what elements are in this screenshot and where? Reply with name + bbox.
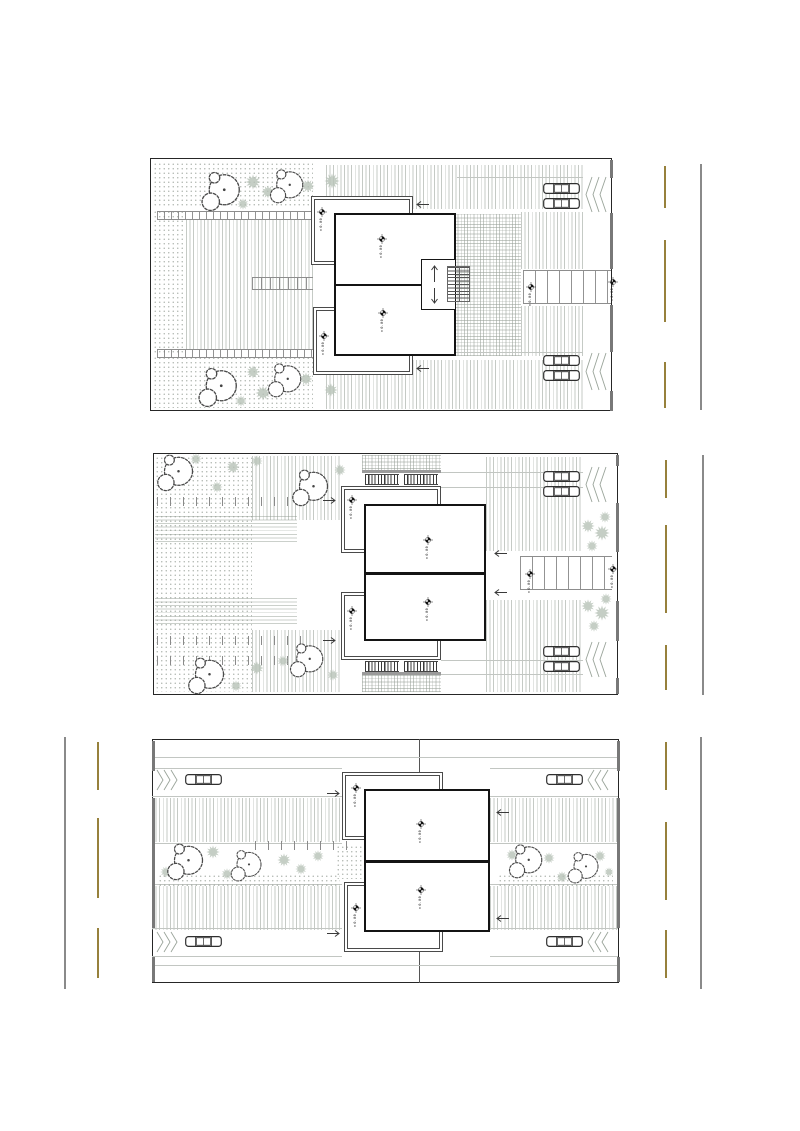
road-centerline-dash — [665, 822, 667, 900]
architectural-site-plans: ±0.00 ±0.00 ±0.00 ±0.00 ±0.00 ±0.00 — [0, 0, 800, 1131]
road-centerline-dash — [97, 928, 99, 978]
curb-line-light — [490, 796, 618, 797]
paver-ticks — [255, 841, 355, 850]
car-icon — [185, 773, 222, 786]
curb-line — [152, 957, 155, 982]
entry-arrow — [326, 929, 342, 938]
level-marker-label: ±0.00 — [354, 794, 358, 808]
level-marker — [416, 885, 426, 895]
car-icon — [185, 935, 222, 948]
tree-icon — [565, 849, 603, 887]
road-edge-line — [700, 737, 702, 989]
paving-hatch — [490, 798, 618, 842]
shrub-icon — [295, 863, 307, 875]
parking-chevrons-icon — [155, 769, 181, 791]
paving-hatch — [152, 886, 342, 930]
building-room — [364, 789, 490, 862]
plan-bottom: ±0.00 ±0.00 ±0.00 ±0.00 — [0, 0, 800, 1131]
building-room — [364, 861, 490, 932]
paving-hatch — [152, 798, 342, 842]
road-centerline-dash — [97, 742, 99, 790]
curb-line-light — [490, 956, 618, 957]
level-marker — [416, 819, 426, 829]
shrub-icon — [277, 853, 291, 867]
shrub-icon — [312, 850, 324, 862]
level-marker-label: ±0.00 — [354, 914, 358, 928]
curb-line-light — [152, 796, 342, 797]
curb-line — [617, 798, 620, 928]
curb-line-light — [152, 928, 342, 929]
car-icon — [546, 773, 583, 786]
tree-icon — [228, 847, 266, 885]
entry-arrow — [326, 789, 342, 798]
entry-arrow — [494, 808, 510, 817]
curb-line-light — [152, 956, 342, 957]
curb-line-light — [152, 965, 619, 966]
road-edge-line — [64, 737, 66, 989]
car-icon — [546, 935, 583, 948]
curb-line-light — [490, 928, 618, 929]
road-centerline-dash — [97, 818, 99, 898]
curb-line — [152, 741, 155, 771]
entry-arrow — [494, 914, 510, 923]
lot-line — [419, 952, 420, 983]
lot-line — [419, 739, 420, 772]
level-marker — [351, 903, 361, 913]
tree-icon — [164, 840, 209, 885]
parking-chevrons-icon — [586, 769, 612, 791]
level-marker — [351, 783, 361, 793]
curb-line — [152, 798, 155, 928]
level-marker-label: ±0.00 — [419, 830, 423, 844]
parking-chevrons-icon — [586, 931, 612, 953]
road-centerline-dash — [665, 930, 667, 978]
paving-hatch — [490, 886, 618, 930]
shrub-icon — [604, 867, 614, 877]
groundcover-stipple — [336, 845, 362, 879]
parking-chevrons-icon — [155, 931, 181, 953]
tree-icon — [506, 841, 548, 883]
curb-line — [617, 957, 620, 982]
curb-line-light — [152, 757, 619, 758]
curb-line — [617, 741, 620, 771]
level-marker-label: ±0.00 — [419, 896, 423, 910]
road-centerline-dash — [665, 742, 667, 790]
